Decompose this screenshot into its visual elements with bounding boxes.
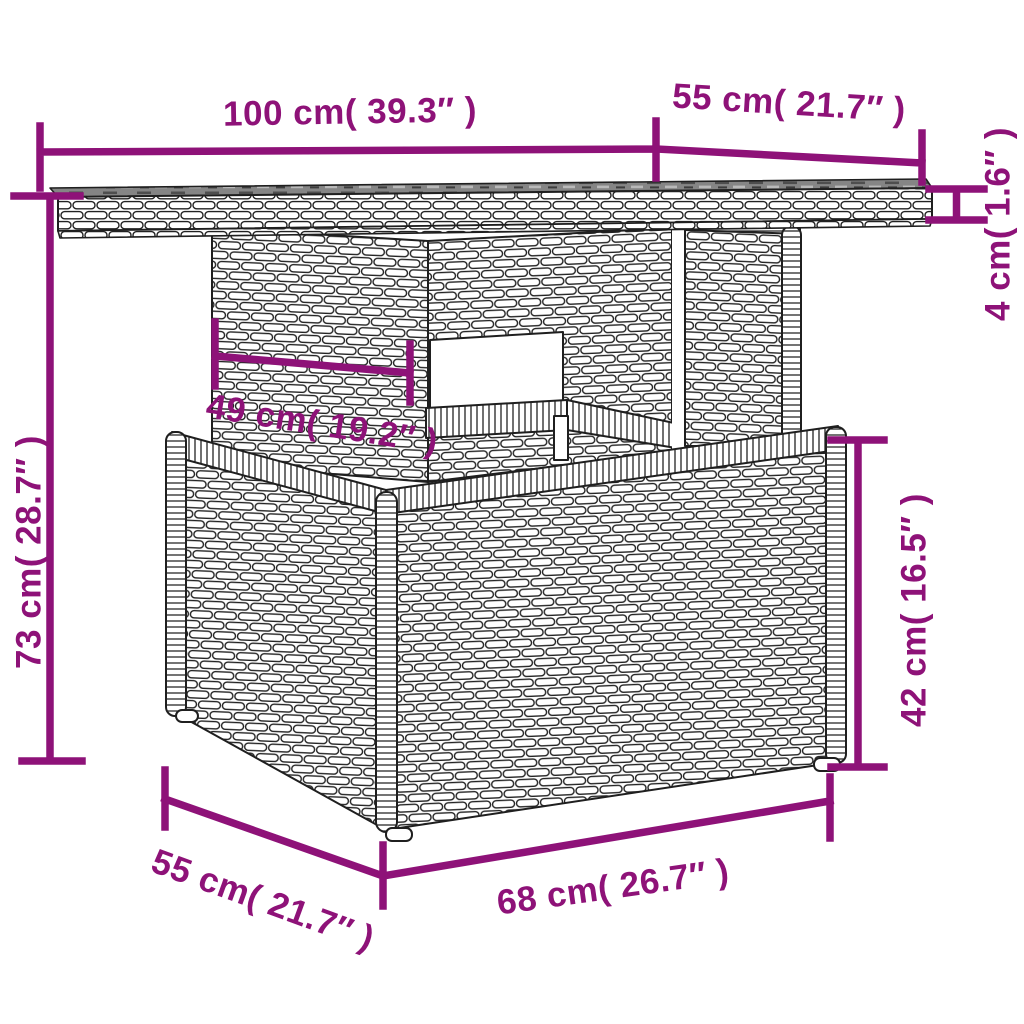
dimension-label-base-height: 42 cm( 16.5″ )	[897, 493, 932, 727]
dim-line-depth-top	[656, 133, 922, 182]
dimension-label-width-top: 100 cm( 39.3″ )	[223, 92, 477, 131]
table-foot	[386, 828, 412, 841]
dimension-label-overall-height: 73 cm( 28.7″ )	[12, 435, 47, 669]
dimension-label-top-thickness: 4 cm( 1.6″ )	[981, 127, 1016, 321]
dim-line-top-thickness	[929, 189, 984, 220]
dimension-diagram: 100 cm( 39.3″ ) 55 cm( 21.7″ ) 4 cm( 1.6…	[0, 0, 1024, 1024]
table-foot	[176, 710, 198, 722]
table-drawing	[50, 179, 932, 841]
base-box	[166, 426, 846, 841]
